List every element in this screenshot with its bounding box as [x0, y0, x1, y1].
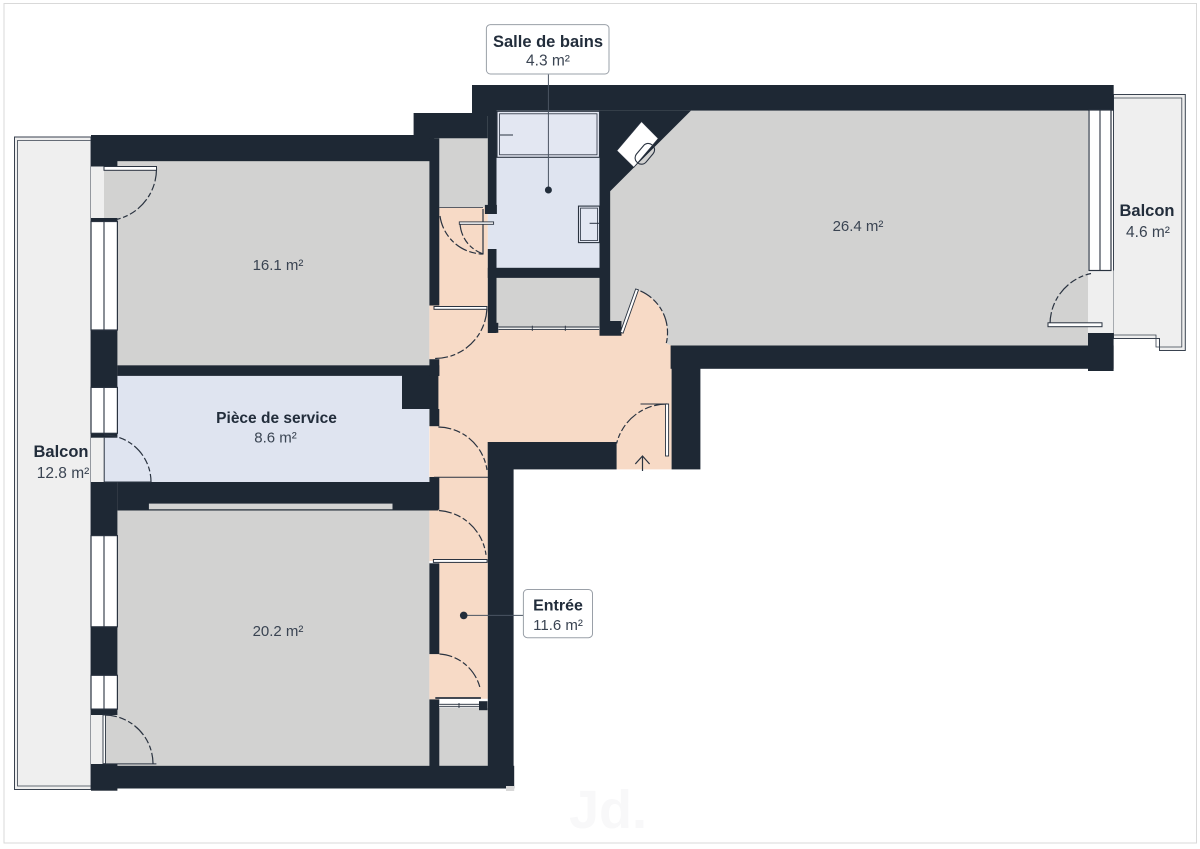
svg-text:8.6 m²: 8.6 m² — [254, 430, 297, 447]
svg-text:12.8 m²: 12.8 m² — [37, 465, 90, 482]
svg-text:16.1 m²: 16.1 m² — [253, 257, 304, 274]
svg-text:11.6 m²: 11.6 m² — [533, 617, 583, 634]
svg-text:Pièce de service: Pièce de service — [216, 410, 337, 427]
svg-text:20.2 m²: 20.2 m² — [253, 623, 304, 640]
svg-text:4.3 m²: 4.3 m² — [526, 53, 570, 70]
svg-text:Jd.: Jd. — [569, 780, 647, 840]
svg-text:26.4 m²: 26.4 m² — [833, 218, 884, 235]
svg-text:Balcon: Balcon — [33, 443, 88, 461]
svg-text:Balcon: Balcon — [1119, 202, 1174, 220]
svg-text:Salle de bains: Salle de bains — [493, 33, 603, 51]
svg-text:Entrée: Entrée — [533, 598, 583, 615]
svg-text:4.6 m²: 4.6 m² — [1126, 224, 1170, 241]
